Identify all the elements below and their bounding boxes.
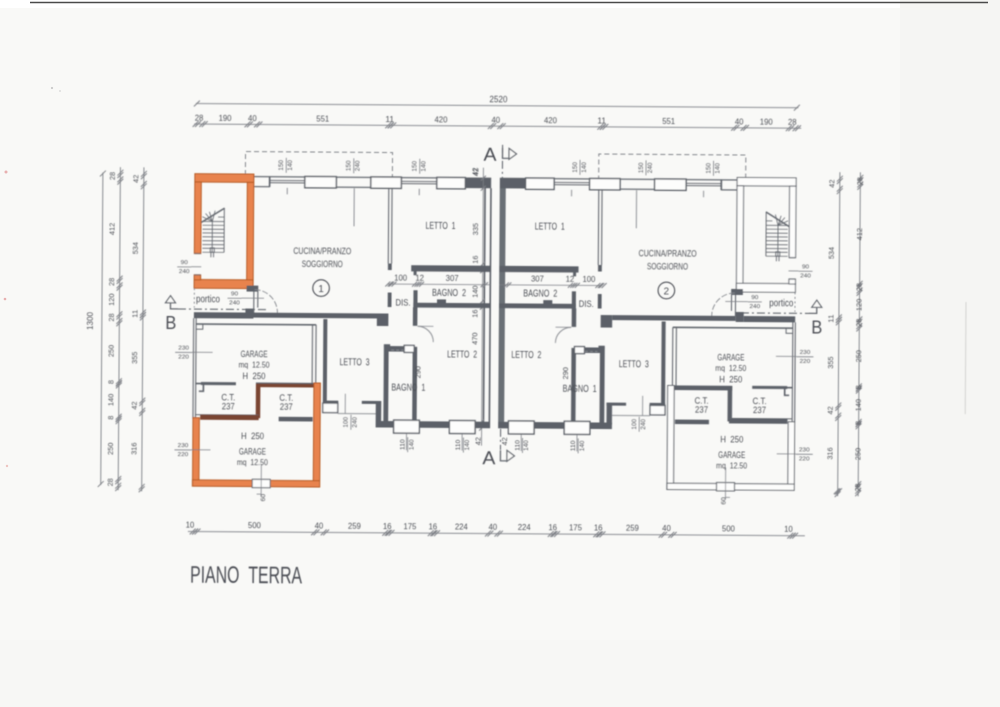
svg-text:8: 8 (854, 385, 863, 389)
svg-text:237: 237 (222, 401, 235, 411)
svg-text:28: 28 (106, 478, 115, 486)
svg-text:355: 355 (130, 352, 139, 364)
svg-text:8: 8 (854, 421, 863, 425)
svg-text:mq 12.50: mq 12.50 (716, 460, 747, 470)
svg-text:28: 28 (107, 313, 116, 321)
svg-text:42: 42 (473, 437, 482, 445)
svg-text:DIS.: DIS. (395, 298, 410, 309)
svg-text:240: 240 (179, 269, 190, 275)
svg-text:LETTO 3: LETTO 3 (340, 357, 370, 368)
svg-text:28: 28 (108, 172, 117, 180)
svg-text:150: 150 (346, 160, 353, 171)
svg-text:SOGGIORNO: SOGGIORNO (647, 261, 688, 272)
svg-text:250: 250 (854, 350, 863, 362)
svg-text:A: A (483, 144, 497, 165)
svg-text:259: 259 (348, 522, 361, 531)
svg-text:12: 12 (566, 275, 575, 284)
svg-text:28: 28 (195, 114, 204, 123)
svg-text:220: 220 (800, 359, 811, 365)
svg-text:100: 100 (582, 275, 595, 284)
svg-text:28: 28 (855, 177, 864, 185)
svg-text:8: 8 (106, 380, 115, 384)
svg-text:110: 110 (570, 440, 577, 451)
svg-text:220: 220 (799, 457, 810, 463)
svg-text:237: 237 (280, 402, 293, 412)
svg-text:240: 240 (354, 160, 361, 171)
svg-text:355: 355 (826, 356, 835, 368)
svg-text:40: 40 (315, 522, 324, 531)
svg-text:SOGGIORNO: SOGGIORNO (302, 259, 343, 270)
svg-text:110: 110 (514, 440, 521, 451)
svg-text:11: 11 (597, 116, 606, 125)
svg-text:316: 316 (825, 447, 834, 459)
svg-text:42: 42 (826, 406, 835, 414)
svg-text:BAGNO 2: BAGNO 2 (523, 288, 557, 299)
svg-text:16: 16 (383, 522, 392, 531)
svg-text:140: 140 (523, 440, 530, 451)
svg-text:120: 120 (107, 294, 116, 306)
svg-text:10: 10 (186, 521, 195, 530)
svg-text:175: 175 (569, 524, 582, 533)
svg-text:150: 150 (705, 163, 712, 174)
svg-text:534: 534 (131, 242, 140, 254)
svg-text:90: 90 (231, 291, 238, 297)
svg-text:GARAGE: GARAGE (717, 351, 744, 362)
svg-text:240: 240 (640, 419, 647, 430)
svg-text:mq 12.50: mq 12.50 (237, 457, 268, 467)
svg-text:GARAGE: GARAGE (241, 348, 268, 359)
svg-text:28: 28 (788, 118, 797, 127)
svg-text:335: 335 (471, 223, 480, 235)
svg-text:40: 40 (248, 114, 257, 123)
svg-text:110: 110 (399, 439, 406, 450)
svg-text:28: 28 (854, 319, 863, 327)
svg-text:307: 307 (531, 275, 544, 284)
svg-text:LETTO 1: LETTO 1 (425, 221, 455, 232)
svg-text:40: 40 (662, 524, 671, 533)
svg-text:42: 42 (500, 437, 509, 445)
svg-text:100: 100 (394, 274, 407, 283)
svg-text:500: 500 (248, 521, 261, 530)
svg-text:240: 240 (647, 162, 654, 173)
svg-text:237: 237 (695, 405, 708, 415)
svg-text:mq 12.50: mq 12.50 (715, 363, 746, 373)
svg-text:175: 175 (403, 522, 416, 531)
svg-text:230: 230 (178, 345, 189, 351)
svg-text:42: 42 (130, 401, 139, 409)
svg-text:40: 40 (488, 523, 497, 532)
svg-text:237: 237 (753, 405, 766, 415)
svg-text:11: 11 (130, 310, 139, 318)
svg-text:230: 230 (178, 443, 189, 449)
svg-text:16: 16 (548, 523, 557, 532)
svg-text:BAGNO 1: BAGNO 1 (563, 384, 597, 395)
svg-text:BAGNO 1: BAGNO 1 (391, 383, 425, 394)
svg-text:551: 551 (662, 117, 675, 126)
svg-text:11: 11 (385, 115, 394, 124)
svg-text:A: A (482, 447, 496, 468)
svg-text:LETTO 3: LETTO 3 (619, 359, 649, 370)
svg-text:290: 290 (413, 366, 422, 378)
svg-text:140: 140 (854, 399, 863, 411)
svg-text:11: 11 (826, 314, 835, 322)
svg-text:1: 1 (318, 283, 324, 295)
svg-text:316: 316 (129, 442, 138, 454)
svg-text:150: 150 (572, 162, 579, 173)
svg-text:100: 100 (631, 419, 638, 430)
svg-text:140: 140 (579, 440, 586, 451)
svg-text:150: 150 (638, 162, 645, 173)
svg-text:140: 140 (408, 439, 415, 450)
svg-text:420: 420 (544, 116, 557, 125)
svg-text:420: 420 (434, 115, 447, 124)
svg-text:CUCINA/PRANZO: CUCINA/PRANZO (293, 246, 351, 257)
svg-text:portico: portico (769, 298, 793, 309)
svg-text:B: B (811, 316, 822, 337)
svg-text:90: 90 (802, 264, 809, 270)
svg-text:224: 224 (455, 523, 468, 532)
svg-text:230: 230 (799, 447, 810, 453)
svg-text:H 250: H 250 (720, 433, 743, 444)
svg-text:portico: portico (196, 294, 220, 305)
svg-text:551: 551 (316, 115, 329, 124)
svg-text:140: 140 (464, 440, 471, 451)
svg-text:40: 40 (491, 116, 500, 125)
svg-text:412: 412 (107, 223, 116, 235)
svg-text:B: B (165, 312, 176, 333)
svg-text:H 250: H 250 (719, 373, 742, 384)
svg-text:140: 140 (420, 161, 427, 172)
svg-text:220: 220 (178, 355, 189, 361)
svg-text:BAGNO 2: BAGNO 2 (432, 288, 466, 299)
svg-text:28: 28 (855, 283, 864, 291)
svg-text:120: 120 (854, 299, 863, 311)
svg-text:190: 190 (219, 114, 232, 123)
svg-text:220: 220 (178, 452, 189, 458)
svg-text:259: 259 (626, 524, 639, 533)
svg-text:240: 240 (800, 274, 811, 280)
svg-text:90: 90 (181, 260, 188, 266)
svg-text:100: 100 (343, 417, 350, 428)
svg-text:16: 16 (594, 524, 603, 533)
svg-text:LETTO 2: LETTO 2 (447, 349, 477, 360)
svg-text:2520: 2520 (489, 94, 507, 104)
svg-text:PIANO TERRA: PIANO TERRA (190, 562, 302, 590)
svg-text:12: 12 (415, 274, 424, 283)
svg-text:10: 10 (784, 525, 793, 534)
svg-text:42: 42 (471, 168, 480, 176)
svg-text:110: 110 (455, 439, 462, 450)
svg-text:LETTO 1: LETTO 1 (535, 222, 565, 233)
svg-text:GARAGE: GARAGE (718, 449, 745, 460)
svg-text:140: 140 (581, 162, 588, 173)
svg-text:90: 90 (751, 295, 758, 301)
svg-text:16: 16 (471, 256, 480, 264)
svg-text:CUCINA/PRANZO: CUCINA/PRANZO (639, 248, 697, 259)
svg-text:2: 2 (664, 285, 670, 297)
svg-text:1300: 1300 (85, 312, 95, 330)
svg-text:140: 140 (471, 285, 480, 297)
svg-text:DIS.: DIS. (579, 299, 594, 310)
svg-text:140: 140 (714, 163, 721, 174)
svg-text:60: 60 (260, 494, 267, 502)
svg-text:H 250: H 250 (241, 430, 264, 441)
svg-text:LETTO 2: LETTO 2 (511, 350, 541, 361)
svg-text:GARAGE: GARAGE (239, 445, 266, 456)
svg-text:mq 12.50: mq 12.50 (239, 359, 270, 369)
svg-text:16: 16 (428, 523, 437, 532)
svg-text:60: 60 (720, 497, 727, 505)
svg-text:250: 250 (853, 448, 862, 460)
svg-text:250: 250 (106, 443, 115, 455)
svg-text:534: 534 (827, 247, 836, 259)
svg-text:42: 42 (131, 175, 140, 183)
svg-text:190: 190 (760, 118, 773, 127)
svg-text:307: 307 (446, 274, 459, 283)
svg-text:150: 150 (278, 160, 285, 171)
svg-text:140: 140 (106, 394, 115, 406)
svg-text:500: 500 (722, 525, 735, 534)
svg-text:42: 42 (827, 179, 836, 187)
svg-text:240: 240 (229, 301, 240, 307)
svg-text:H 250: H 250 (242, 370, 265, 381)
svg-text:224: 224 (518, 523, 531, 532)
svg-text:470: 470 (470, 332, 479, 344)
svg-text:240: 240 (352, 417, 359, 428)
svg-text:412: 412 (855, 228, 864, 240)
svg-text:16: 16 (470, 310, 479, 318)
svg-text:230: 230 (800, 350, 811, 356)
svg-text:150: 150 (412, 161, 419, 172)
svg-text:40: 40 (735, 117, 744, 126)
svg-text:250: 250 (107, 345, 116, 357)
svg-text:8: 8 (106, 416, 115, 420)
svg-text:28: 28 (107, 278, 116, 286)
svg-text:28: 28 (853, 483, 862, 491)
svg-text:240: 240 (749, 304, 760, 310)
svg-text:290: 290 (561, 367, 570, 379)
svg-text:140: 140 (287, 160, 294, 171)
